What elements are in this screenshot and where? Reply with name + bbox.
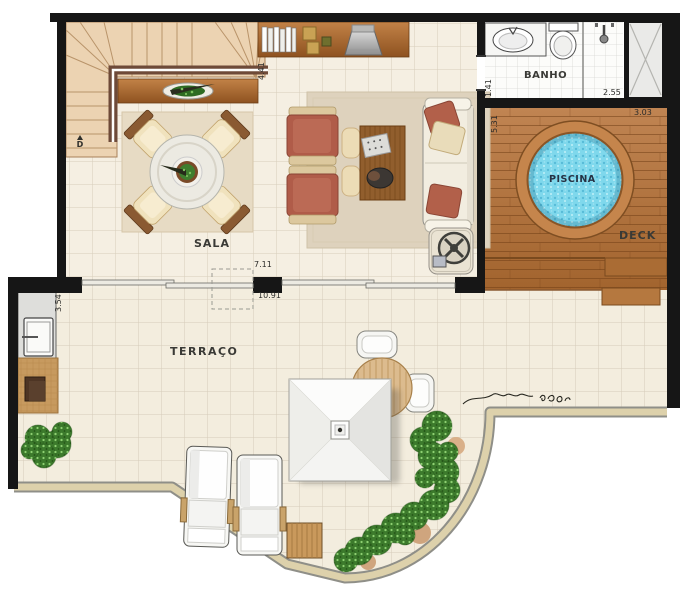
- room-label-sala: SALA: [194, 237, 230, 250]
- floor-fan: [429, 228, 473, 274]
- deck-step-lower: [602, 288, 660, 305]
- lounger-armrest: [180, 498, 187, 522]
- bathroom-sink: [485, 23, 546, 56]
- floor-plan: SALA BANHO PISCINA DECK TERRAÇO D 4.41 1…: [0, 0, 685, 600]
- decor-box: [303, 27, 316, 40]
- room-label-deck: DECK: [619, 229, 656, 242]
- deck-step-upper: [605, 258, 667, 276]
- lounger-armrest: [233, 507, 239, 531]
- room-label-terraco: TERRAÇO: [170, 345, 238, 358]
- sun-lounger: [233, 455, 286, 555]
- dim-deck-top: 3.03: [634, 108, 652, 117]
- sofa: [423, 98, 473, 232]
- sofa-pillow: [426, 183, 463, 218]
- stair-sideboard: [118, 79, 258, 103]
- armchair: [287, 166, 338, 224]
- stairs-direction-marker: D: [73, 135, 87, 149]
- dim-banho-door-side: 1.41: [484, 79, 493, 97]
- room-label-piscina: PISCINA: [549, 174, 596, 185]
- stairs-direction-letter: D: [73, 141, 87, 149]
- dim-deck-side: 5.31: [490, 115, 499, 133]
- floor-cushion: [342, 128, 360, 158]
- toilet: [549, 23, 578, 59]
- terrace-kitchenette: [18, 288, 58, 413]
- armchair: [287, 107, 338, 165]
- lounger-armrest: [280, 507, 286, 531]
- room-label-banho: BANHO: [524, 70, 567, 81]
- umbrella: [289, 379, 400, 484]
- floor-cushion: [342, 166, 360, 196]
- sun-lounger: [180, 446, 236, 548]
- side-table: [287, 523, 322, 558]
- dim-kitchen-side: 3.54: [54, 294, 63, 312]
- dim-banho-width: 2.55: [603, 88, 621, 97]
- books: [262, 27, 296, 52]
- dim-terrace-span: 10.91: [258, 291, 281, 300]
- dim-stairs-side: 4.41: [257, 62, 266, 80]
- dim-sala-opening: 7.11: [254, 260, 272, 269]
- door-jamb: [476, 55, 486, 57]
- wall-cabinet: [258, 22, 409, 57]
- decor-box: [307, 42, 319, 54]
- decor-box-small: [322, 37, 331, 46]
- floor-plan-drawing: [0, 0, 685, 600]
- ventilation-shaft: [624, 18, 667, 102]
